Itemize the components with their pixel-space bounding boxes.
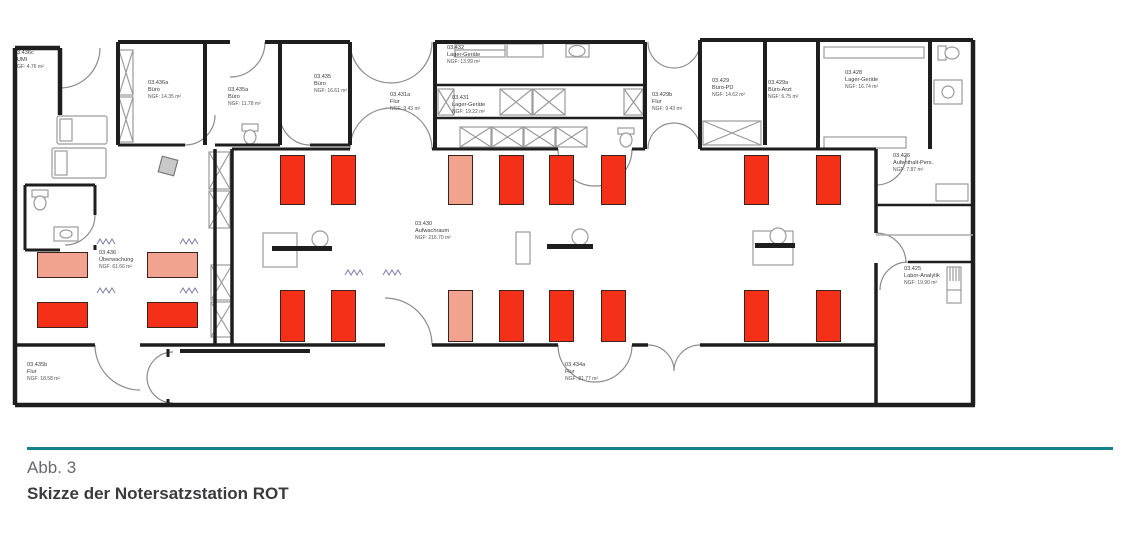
room-label: 03.435aBüroNGF: 11.78 m²: [228, 87, 261, 107]
room-label-id: 03.434a: [565, 362, 598, 369]
room-label-name: Büro: [148, 87, 181, 94]
caption-divider: [27, 447, 1113, 450]
room-label: 03.436ÜberwachungNGF: 61.66 m²: [99, 250, 134, 270]
bed-marker: [499, 290, 524, 342]
room-label-area: NGF: 19.22 m²: [452, 109, 485, 115]
room-label-id: 03.428: [845, 70, 878, 77]
lab-radiator-icon: [947, 267, 961, 303]
room-label-id: 03.429a: [768, 80, 798, 87]
bed-marker: [37, 252, 88, 278]
room-label: 03.429aBüro-ArztNGF: 6.75 m²: [768, 80, 798, 100]
chair-icon: [158, 156, 178, 176]
bed-marker: [331, 155, 356, 205]
room-label: 03.429Büro-PDNGF: 14.62 m²: [712, 78, 745, 98]
toilet-icon: [938, 46, 959, 60]
room-label: 03.428Lager-GeräteNGF: 16.74 m²: [845, 70, 878, 90]
room-label: 03.425Labor-AnalytikNGF: 19.90 m²: [904, 266, 940, 286]
room-label-name: Labor-Analytik: [904, 273, 940, 280]
figure-number: Abb. 3: [27, 458, 76, 478]
figure-title: Skizze der Notersatzstation ROT: [27, 484, 289, 504]
room-label-area: NGF: 19.90 m²: [904, 280, 940, 286]
bed-marker: [549, 155, 574, 205]
bed-outline-icon: [52, 148, 106, 178]
toilet-icon: [618, 128, 634, 147]
room-label-area: NGF: 18.58 m²: [27, 376, 60, 382]
bed-outline-icon: [57, 116, 107, 144]
room-label-area: NGF: 16.61 m²: [314, 88, 347, 94]
room-label: 03.431Lager-GeräteNGF: 19.22 m²: [452, 95, 485, 115]
room-label: 3.436cUMIGF: 4.76 m²: [17, 50, 44, 70]
workstation-counter: [272, 243, 795, 251]
room-label: 03.435bFlurNGF: 18.58 m²: [27, 362, 60, 382]
room-label-area: NGF: 14.35 m²: [148, 94, 181, 100]
room-label-area: NGF: 81.77 m²: [565, 376, 598, 382]
room-label-id: 03.429: [712, 78, 745, 85]
room-label-id: 03.436: [99, 250, 134, 257]
room-label-id: 03.435b: [27, 362, 60, 369]
bed-marker: [280, 290, 305, 342]
room-label: 03.436aBüroNGF: 14.35 m²: [148, 80, 181, 100]
bed-marker: [816, 155, 841, 205]
bed-marker: [448, 155, 473, 205]
bed-marker: [280, 155, 305, 205]
room-label-id: 03.429b: [652, 92, 682, 99]
room-label-name: Büro: [228, 94, 261, 101]
room-label: 03.426Aufenthalt-Pers.NGF: 7.87 m²: [893, 153, 933, 173]
room-label-name: Flur: [652, 99, 682, 106]
room-label-name: Flur: [27, 369, 60, 376]
bed-marker: [448, 290, 473, 342]
room-label: 03.432Lager-GeräteNGF: 13.99 m²: [447, 45, 480, 65]
room-label: 03.429bFlurNGF: 9.43 m²: [652, 92, 682, 112]
bed-marker: [744, 155, 769, 205]
toilet-icon: [242, 124, 258, 144]
bed-marker: [499, 155, 524, 205]
room-label: 03.434aFlurNGF: 81.77 m²: [565, 362, 598, 382]
room-label: 03.431aFlurNGF: 9.43 m²: [390, 92, 420, 112]
room-label-area: NGF: 11.78 m²: [228, 101, 261, 107]
room-label: 03.435BüroNGF: 16.61 m²: [314, 74, 347, 94]
room-label-name: Lager-Geräte: [447, 52, 480, 59]
room-label-name: Flur: [390, 99, 420, 106]
sink-icon: [54, 227, 78, 241]
room-label-area: NGF: 9.43 m²: [390, 106, 420, 112]
bed-marker: [549, 290, 574, 342]
room-label-name: Aufenthalt-Pers.: [893, 160, 933, 167]
room-label-area: NGF: 61.66 m²: [99, 264, 134, 270]
room-label-name: Überwachung: [99, 257, 134, 264]
bed-marker: [816, 290, 841, 342]
outlet-zigzag-icon: [97, 239, 401, 293]
bed-marker: [147, 252, 198, 278]
room-label-id: 03.431a: [390, 92, 420, 99]
page: 3.436cUMIGF: 4.76 m²03.436aBüroNGF: 14.3…: [0, 0, 1140, 552]
workstation-icon: [263, 228, 793, 267]
room-label-id: 03.430: [415, 221, 451, 228]
bed-marker: [744, 290, 769, 342]
bed-marker: [331, 290, 356, 342]
room-label-id: 03.435a: [228, 87, 261, 94]
room-label-name: UMI: [17, 57, 44, 64]
room-label-name: Flur: [565, 369, 598, 376]
room-label-id: 03.431: [452, 95, 485, 102]
shower-icon: [934, 80, 962, 104]
bed-marker: [601, 155, 626, 205]
room-label-area: NGF: 13.99 m²: [447, 59, 480, 65]
room-label-area: NGF: 6.75 m²: [768, 94, 798, 100]
room-label: 03.430AufwachraumNGF: 216.70 m²: [415, 221, 451, 241]
room-label-name: Lager-Geräte: [845, 77, 878, 84]
room-label-id: 03.436a: [148, 80, 181, 87]
room-label-area: NGF: 216.70 m²: [415, 235, 451, 241]
toilet-icon: [32, 190, 48, 210]
room-label-id: 03.435: [314, 74, 347, 81]
room-label-area: NGF: 9.43 m²: [652, 106, 682, 112]
room-label-name: Lager-Geräte: [452, 102, 485, 109]
room-label-area: NGF: 14.62 m²: [712, 92, 745, 98]
bed-marker: [601, 290, 626, 342]
room-label-area: NGF: 16.74 m²: [845, 84, 878, 90]
room-label-id: 03.426: [893, 153, 933, 160]
room-label-id: 03.425: [904, 266, 940, 273]
room-label-name: Büro-Arzt: [768, 87, 798, 94]
floor-plan: 3.436cUMIGF: 4.76 m²03.436aBüroNGF: 14.3…: [0, 0, 1140, 552]
bed-marker: [37, 302, 88, 328]
room-label-id: 03.432: [447, 45, 480, 52]
room-label-area: GF: 4.76 m²: [17, 64, 44, 70]
room-label-name: Büro-PD: [712, 85, 745, 92]
bed-marker: [147, 302, 198, 328]
room-label-area: NGF: 7.87 m²: [893, 167, 933, 173]
room-label-name: Büro: [314, 81, 347, 88]
room-label-name: Aufwachraum: [415, 228, 451, 235]
room-label-id: 3.436c: [17, 50, 44, 57]
